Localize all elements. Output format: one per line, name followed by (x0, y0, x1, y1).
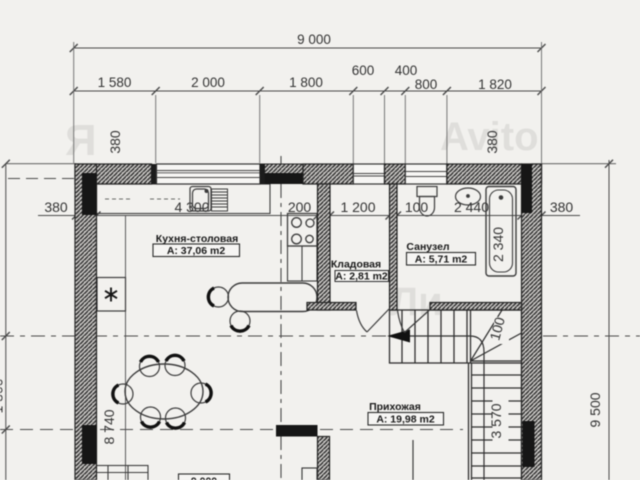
svg-text:9 500: 9 500 (587, 392, 603, 427)
svg-text:8 740: 8 740 (101, 409, 117, 444)
svg-text:1 800: 1 800 (0, 378, 6, 413)
svg-text:1 200: 1 200 (340, 199, 375, 215)
svg-text:380: 380 (107, 130, 123, 154)
svg-text:Кладовая: Кладовая (331, 259, 381, 271)
svg-text:Я: Я (65, 116, 97, 165)
svg-text:А: 37,06 m2: А: 37,06 m2 (167, 245, 226, 257)
svg-text:А: 19,98 m2: А: 19,98 m2 (376, 414, 435, 426)
svg-text:Прихожая: Прихожая (369, 401, 421, 413)
svg-text:800: 800 (415, 77, 438, 92)
svg-text:2 440: 2 440 (454, 199, 489, 215)
svg-text:2 340: 2 340 (490, 227, 506, 262)
svg-text:1 800: 1 800 (289, 75, 323, 90)
svg-text:А: 2,81 m2: А: 2,81 m2 (335, 271, 388, 283)
svg-text:600: 600 (352, 63, 375, 78)
svg-text:3 570: 3 570 (488, 403, 504, 438)
svg-text:400: 400 (395, 63, 418, 78)
svg-text:9 000: 9 000 (297, 32, 331, 47)
svg-text:9 000: 9 000 (191, 476, 217, 480)
svg-text:1 580: 1 580 (98, 75, 132, 90)
svg-text:А: 5,71 m2: А: 5,71 m2 (415, 254, 468, 266)
svg-text:Кухня-столовая: Кухня-столовая (156, 233, 238, 245)
svg-text:380: 380 (484, 130, 500, 154)
svg-text:1 820: 1 820 (478, 77, 512, 92)
svg-text:380: 380 (550, 199, 574, 215)
svg-text:100: 100 (405, 199, 429, 215)
svg-text:380: 380 (44, 199, 68, 215)
svg-text:Санузел: Санузел (406, 241, 449, 253)
svg-text:200: 200 (288, 199, 312, 215)
svg-text:2 000: 2 000 (191, 75, 225, 90)
